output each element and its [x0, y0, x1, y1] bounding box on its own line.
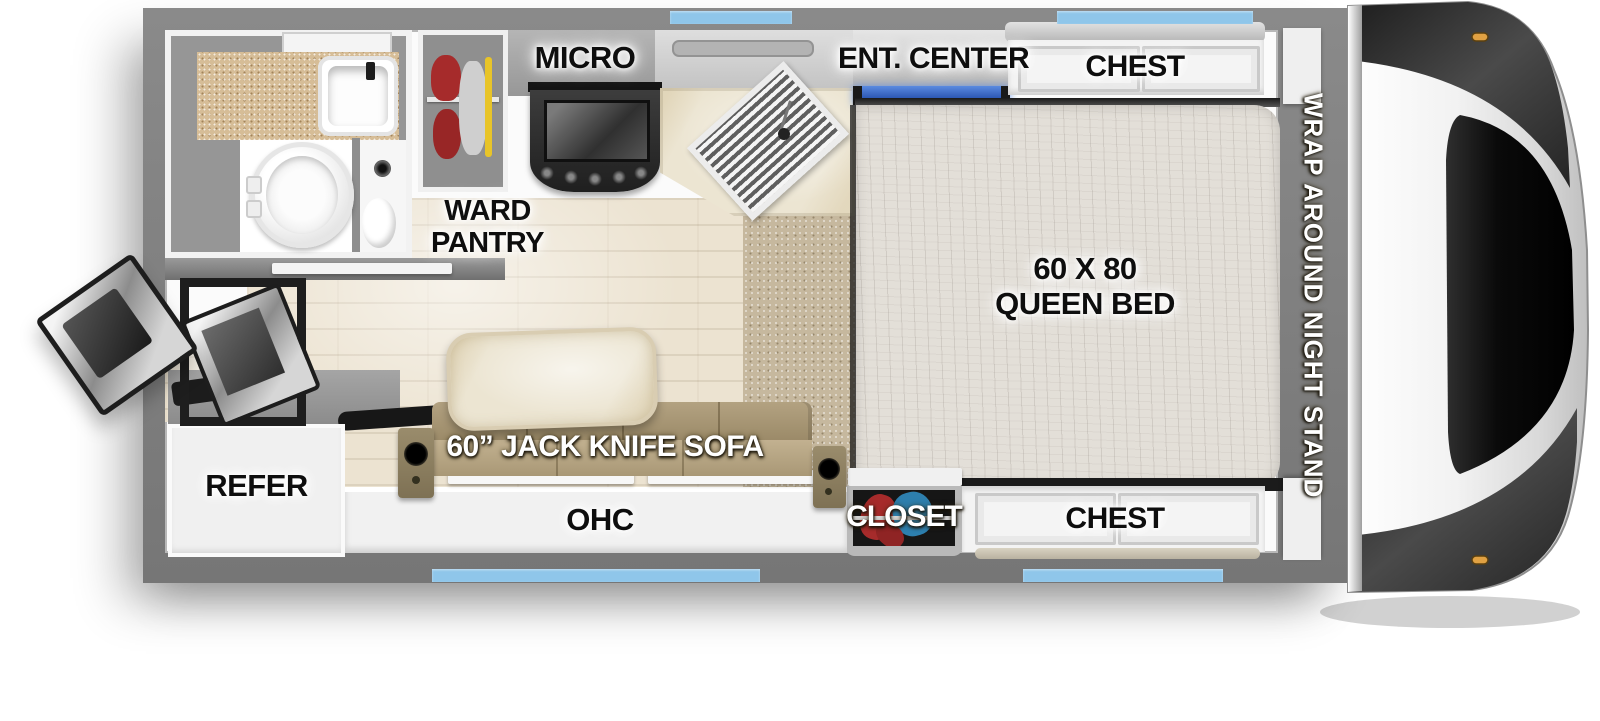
ohc-label: OHC	[450, 502, 750, 538]
queen-bed-label: 60 X 80 QUEEN BED	[935, 252, 1235, 321]
sofa-label: 60” JACK KNIFE SOFA	[420, 430, 790, 464]
window-accent-bottom-2	[1023, 569, 1223, 582]
ent-center-label: ENT. CENTER	[838, 42, 1023, 76]
clothes-red-icon	[431, 55, 461, 101]
range-icon	[530, 90, 660, 192]
chest-base-trim	[975, 548, 1260, 559]
cabinet-handle-icon	[672, 40, 814, 57]
ward-pantry-label: WARD PANTRY	[405, 196, 570, 260]
closet-label: CLOSET	[838, 500, 970, 534]
marker-light-icon	[1472, 33, 1488, 41]
toilet-icon	[250, 142, 354, 248]
sink-drain-icon	[778, 128, 790, 140]
clothes-red-icon	[433, 109, 461, 159]
window-accent-bottom-1	[432, 569, 760, 582]
bathroom-door	[272, 263, 452, 274]
speaker-right-icon	[813, 446, 846, 508]
window-accent-top-2	[1057, 11, 1253, 24]
micro-label: MICRO	[505, 40, 665, 76]
oven-window-icon	[544, 100, 650, 162]
refer-label: REFER	[168, 468, 345, 504]
shower-pan	[360, 140, 406, 252]
window-accent-top-1	[670, 11, 792, 24]
chest-top-lid	[1005, 22, 1265, 42]
nose-shadow	[1320, 596, 1580, 628]
shower-head-icon	[362, 198, 396, 248]
night-stand-label: WRAP AROUND NIGHT STAND	[1278, 8, 1348, 583]
shower-drain-icon	[374, 160, 391, 177]
chest-bottom-label: CHEST	[1020, 502, 1210, 536]
clothes-gray-icon	[459, 61, 487, 155]
bath-faucet-icon	[366, 62, 375, 80]
bath-sink-icon	[318, 56, 398, 136]
marker-light-icon	[1472, 556, 1488, 564]
wardrobe	[418, 30, 508, 192]
chest-top-label: CHEST	[1040, 50, 1230, 84]
floor-plan-diagram: MICRO ENT. CENTER CHEST WARD PANTRY 60 X…	[0, 0, 1600, 721]
clothes-yellow-icon	[485, 57, 492, 157]
bed-platform-edge	[850, 105, 856, 488]
nose-edge	[1348, 5, 1362, 592]
closet-lid	[848, 468, 962, 486]
dinette-table	[445, 326, 658, 431]
